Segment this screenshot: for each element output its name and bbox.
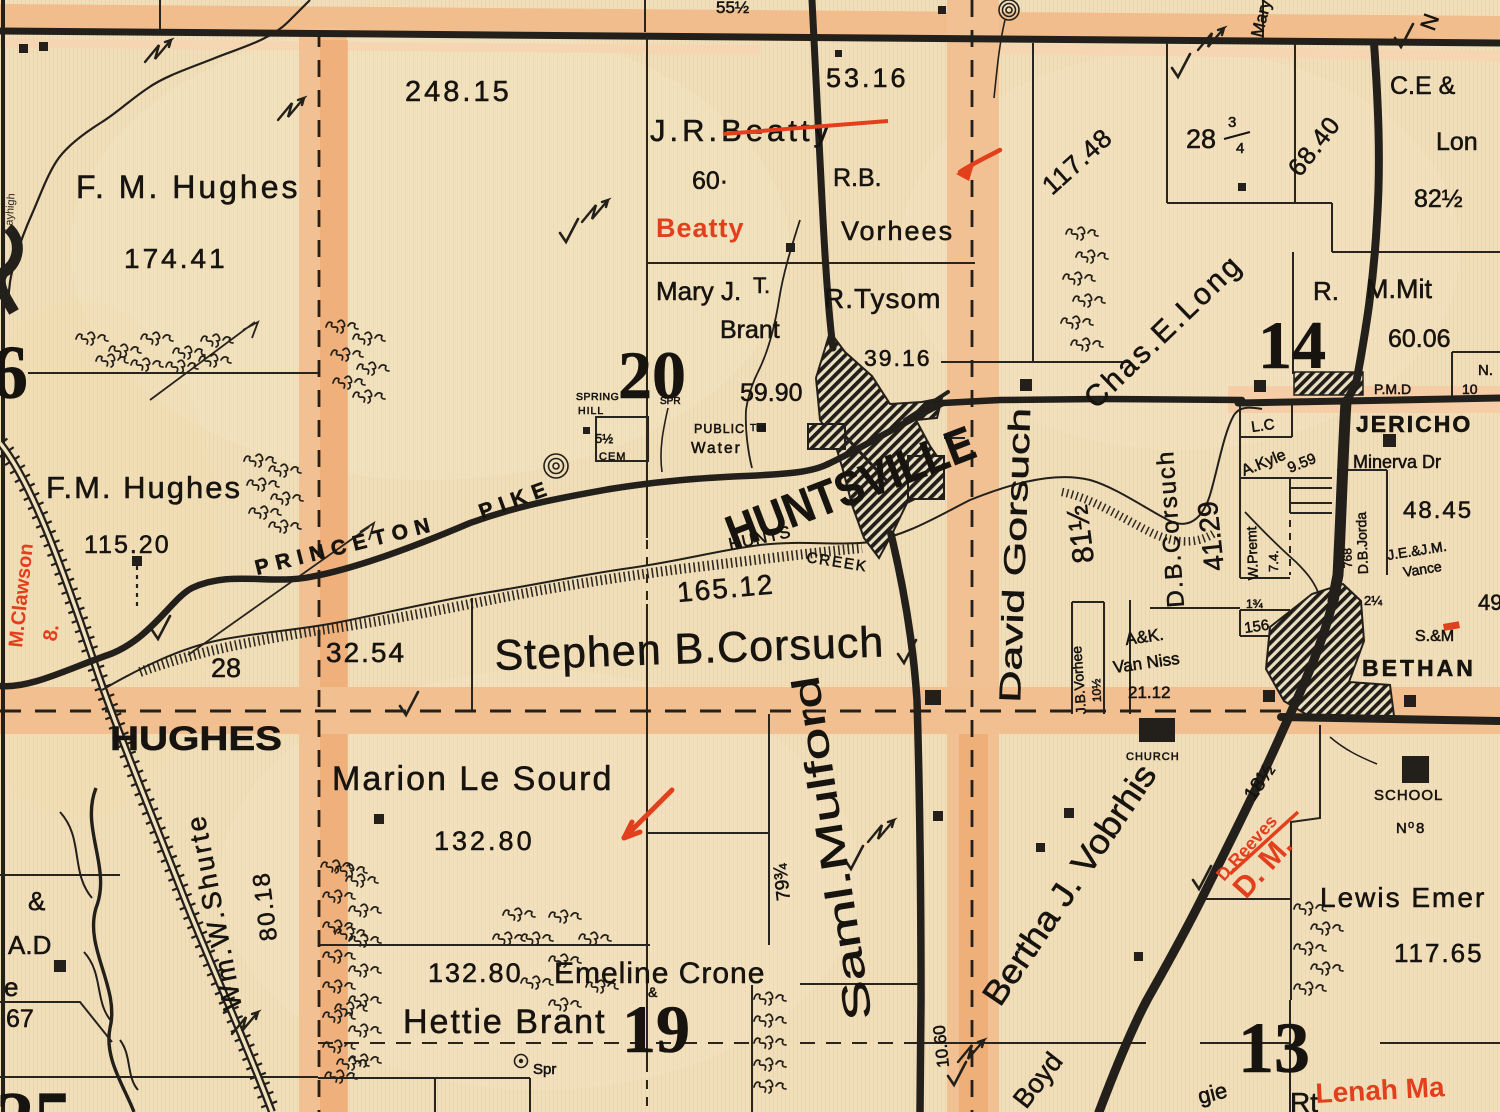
- svg-text:156: 156: [1243, 617, 1270, 637]
- svg-text:32.54: 32.54: [326, 637, 406, 668]
- svg-text:2¼: 2¼: [1364, 593, 1382, 608]
- svg-text:60.06: 60.06: [1388, 325, 1451, 353]
- svg-text:CEM: CEM: [599, 451, 626, 463]
- svg-text:1¾: 1¾: [1246, 597, 1264, 611]
- svg-text:60·: 60·: [692, 167, 728, 195]
- svg-text:R.: R.: [1313, 276, 1339, 306]
- svg-text:81½: 81½: [1061, 503, 1101, 565]
- svg-text:A.D: A.D: [8, 930, 51, 960]
- svg-text:W.Premt: W.Premt: [1243, 526, 1261, 580]
- svg-text:59.90: 59.90: [740, 379, 803, 407]
- svg-text:Marion Le Sourd: Marion Le Sourd: [332, 760, 613, 798]
- svg-text:21.12: 21.12: [1128, 683, 1171, 702]
- svg-text:SPR: SPR: [660, 396, 681, 407]
- svg-text:Brant: Brant: [720, 316, 780, 344]
- svg-text:Mary J.: Mary J.: [656, 276, 741, 306]
- svg-text:N.: N.: [1478, 362, 1493, 379]
- svg-text:e: e: [4, 972, 18, 1002]
- svg-text:Vorhees: Vorhees: [841, 216, 954, 246]
- svg-text:Hettie Brant: Hettie Brant: [403, 1003, 607, 1041]
- svg-text:S.&M: S.&M: [1415, 628, 1454, 645]
- svg-text:174.41: 174.41: [124, 243, 228, 274]
- svg-text:5½: 5½: [595, 431, 613, 446]
- svg-text:Lewis Emer: Lewis Emer: [1320, 882, 1486, 913]
- svg-text:67: 67: [6, 1005, 34, 1033]
- svg-text:14: 14: [1258, 307, 1326, 383]
- svg-text:Beatty: Beatty: [656, 213, 745, 243]
- svg-text:C.E &: C.E &: [1390, 72, 1456, 100]
- svg-text:25: 25: [0, 1077, 72, 1112]
- svg-text:Rt: Rt: [1290, 1087, 1318, 1112]
- svg-text:19: 19: [622, 991, 690, 1067]
- svg-text:N: N: [1396, 820, 1407, 837]
- svg-text:10½: 10½: [1089, 679, 1104, 703]
- svg-text:53.16: 53.16: [826, 63, 909, 93]
- svg-text:R.B.: R.B.: [833, 164, 882, 192]
- svg-text:79¾: 79¾: [770, 862, 795, 902]
- svg-text:L.C: L.C: [1250, 416, 1276, 436]
- svg-text:J.R.Beatty: J.R.Beatty: [650, 113, 833, 148]
- svg-text:Tks: Tks: [750, 423, 766, 434]
- svg-text:28: 28: [211, 653, 241, 683]
- svg-text:SCHOOL: SCHOOL: [1374, 787, 1443, 804]
- svg-text:SPRING: SPRING: [576, 391, 619, 403]
- svg-text:HUGHES: HUGHES: [110, 720, 282, 758]
- svg-text:D.B.Jorda: D.B.Jorda: [1353, 511, 1371, 574]
- svg-text:3: 3: [1228, 114, 1236, 131]
- svg-text:HILL: HILL: [578, 405, 604, 417]
- svg-text:o: o: [1408, 819, 1414, 831]
- svg-text:4: 4: [1236, 140, 1244, 157]
- svg-text:248.15: 248.15: [405, 76, 512, 108]
- svg-text:132.80: 132.80: [434, 826, 535, 856]
- svg-text:49: 49: [1478, 590, 1500, 615]
- svg-text:6: 6: [0, 331, 28, 415]
- svg-text:Water: Water: [691, 440, 742, 457]
- svg-text:Lon: Lon: [1436, 128, 1478, 156]
- svg-text:7.4.: 7.4.: [1266, 550, 1281, 572]
- svg-text:F. M. Hughes: F. M. Hughes: [76, 169, 301, 205]
- svg-text:JERICHO: JERICHO: [1356, 411, 1472, 437]
- svg-text:&: &: [28, 886, 45, 916]
- svg-text:BETHAN: BETHAN: [1362, 655, 1476, 681]
- svg-text:48.45: 48.45: [1403, 497, 1473, 524]
- svg-text:F.M. Hughes: F.M. Hughes: [46, 470, 242, 505]
- svg-text:T.: T.: [753, 273, 770, 298]
- svg-text:Emeline Crone: Emeline Crone: [554, 957, 765, 990]
- svg-text:115.20: 115.20: [84, 531, 171, 559]
- svg-text:P.M.D: P.M.D: [1374, 381, 1411, 397]
- svg-text:PUBLIC: PUBLIC: [694, 422, 745, 436]
- svg-text:39.16: 39.16: [864, 345, 932, 371]
- svg-text:82½: 82½: [1414, 185, 1463, 213]
- svg-text:R.Tysom: R.Tysom: [824, 283, 941, 314]
- svg-text:Minerva Dr: Minerva Dr: [1353, 452, 1441, 472]
- svg-text:Spr: Spr: [533, 1061, 556, 1078]
- svg-text:13: 13: [1238, 1008, 1310, 1088]
- svg-text:117.65: 117.65: [1394, 938, 1484, 968]
- svg-text:768: 768: [1340, 548, 1355, 569]
- svg-text:28: 28: [1186, 124, 1216, 154]
- svg-text:55½: 55½: [716, 0, 749, 17]
- svg-text:10: 10: [1462, 381, 1478, 397]
- svg-text:8: 8: [1416, 820, 1424, 837]
- svg-text:M.Mit: M.Mit: [1366, 274, 1432, 304]
- svg-text:132.80: 132.80: [428, 958, 523, 988]
